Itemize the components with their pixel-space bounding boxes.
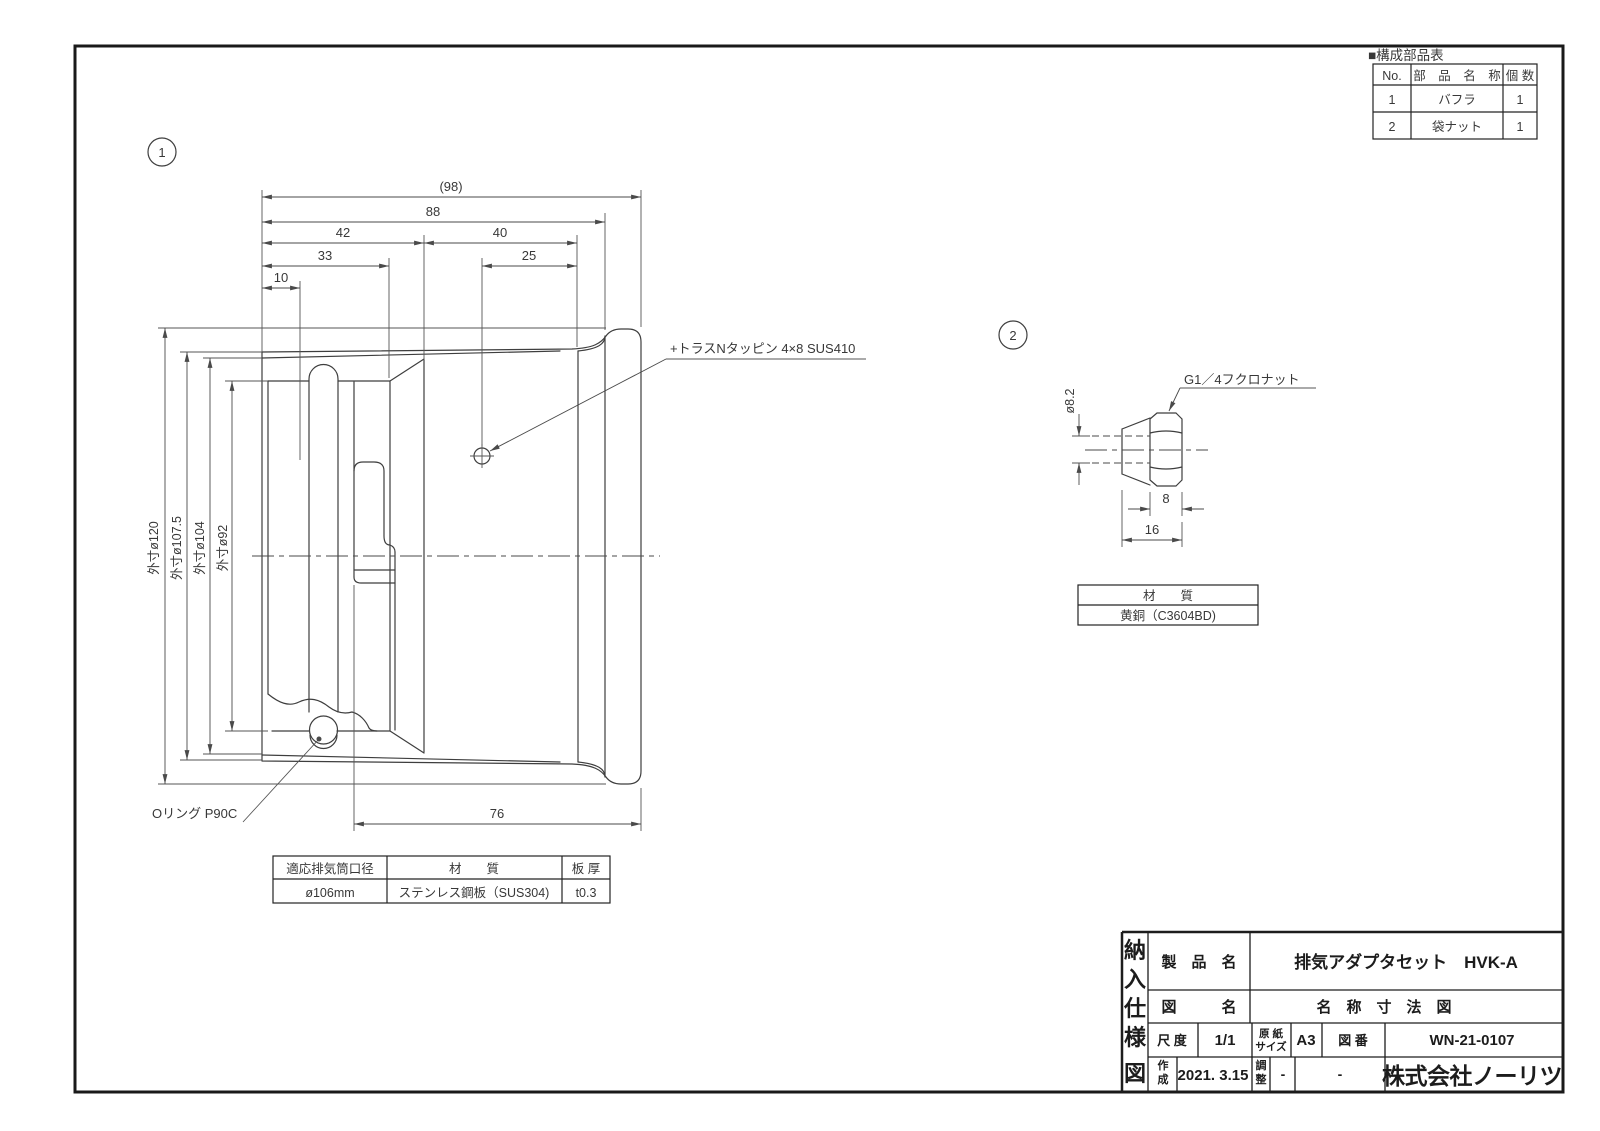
parts-row-name: バフラ xyxy=(1438,93,1476,107)
view1-balloon: 1 xyxy=(148,138,176,166)
dim-40: 40 xyxy=(493,225,507,240)
spec-header-bore: 適応排気筒口径 xyxy=(286,861,374,876)
dim-88: 88 xyxy=(426,204,440,219)
parts-row-no: 2 xyxy=(1389,120,1396,134)
spec-value-material: ステンレス鋼板（SUS304) xyxy=(399,886,550,900)
view2-balloon: 2 xyxy=(999,321,1027,349)
oring-section xyxy=(310,716,338,749)
page-frame xyxy=(75,46,1563,1092)
spec-value-bore: ø106mm xyxy=(305,886,354,900)
side-label-char: 入 xyxy=(1124,967,1146,992)
view2-material-table: 材 質 黄銅（C3604BD) xyxy=(1078,585,1258,625)
created-label-char: 作 xyxy=(1158,1058,1169,1072)
dim-98: (98) xyxy=(439,179,462,194)
drawing-name-value: 名 称 寸 法 図 xyxy=(1316,998,1451,1016)
screw-mark xyxy=(470,444,494,468)
side-label-char: 納 xyxy=(1124,938,1146,963)
parts-col-no: No. xyxy=(1382,69,1401,83)
side-label-char: 様 xyxy=(1124,1025,1147,1050)
drawing-sheet: ■構成部品表 No. 部 品 名 称 個 数 1 バフラ 1 2 袋ナット 1 … xyxy=(0,0,1600,1131)
dim-10: 10 xyxy=(274,270,288,285)
paper-size-value: A3 xyxy=(1296,1032,1315,1049)
parts-row-qty: 1 xyxy=(1517,93,1524,107)
nut-callout-text: G1／4フクロナット xyxy=(1184,372,1300,387)
view1-geometry xyxy=(252,329,660,784)
parts-row-no: 1 xyxy=(1389,93,1396,107)
scale-value: 1/1 xyxy=(1215,1032,1236,1049)
parts-row-qty: 1 xyxy=(1517,120,1524,134)
drawing-name-label: 図 名 xyxy=(1161,998,1236,1016)
dim-8: 8 xyxy=(1162,491,1169,506)
dim-76: 76 xyxy=(490,806,504,821)
spec-value-thickness: t0.3 xyxy=(576,886,597,900)
company-logo: 株式会社ノーリツ xyxy=(1382,1063,1562,1089)
oring-callout-text: Oリング P90C xyxy=(152,806,237,821)
adjusted-value: - xyxy=(1281,1066,1286,1082)
product-label: 製 品 名 xyxy=(1160,953,1236,971)
product-value: 排気アダプタセット HVK-A xyxy=(1294,952,1518,972)
spec-header-material: 材 質 xyxy=(449,861,499,876)
oring-callout: Oリング P90C xyxy=(152,737,322,823)
view1-extension-lines xyxy=(158,190,641,831)
dim-dia8-2: ø8.2 xyxy=(1063,388,1077,413)
parts-col-qty: 個 数 xyxy=(1506,68,1535,83)
material-header: 材 質 xyxy=(1143,588,1193,603)
hidden-bore-lines xyxy=(1092,436,1150,463)
material-value: 黄銅（C3604BD) xyxy=(1120,609,1216,623)
screw-callout-text: +トラスNタッピン 4×8 SUS410 xyxy=(670,341,855,356)
drawing-canvas: ■構成部品表 No. 部 品 名 称 個 数 1 バフラ 1 2 袋ナット 1 … xyxy=(0,0,1600,1131)
drawing-number-value: WN-21-0107 xyxy=(1429,1032,1514,1049)
spec-header-thickness: 板 厚 xyxy=(572,862,600,876)
paper-size-label: 原 紙 xyxy=(1259,1027,1283,1040)
dim-16: 16 xyxy=(1145,522,1159,537)
screw-callout: +トラスNタッピン 4×8 SUS410 xyxy=(490,341,866,451)
balloon-number: 1 xyxy=(158,145,165,160)
dim-dia120: 外寸ø120 xyxy=(147,521,161,575)
created-date-value: 2021. 3.15 xyxy=(1178,1067,1249,1084)
nut-callout: G1／4フクロナット xyxy=(1169,372,1316,411)
side-label-char: 図 xyxy=(1124,1061,1146,1086)
dim-dia104: 外寸ø104 xyxy=(193,521,207,575)
drawing-number-label: 図 番 xyxy=(1338,1033,1369,1048)
dim-25: 25 xyxy=(522,248,536,263)
view1-dimensions: (98) 88 42 40 33 25 10 76 外寸ø120 外寸ø107.… xyxy=(147,179,641,824)
balloon-number: 2 xyxy=(1009,328,1016,343)
parts-table: ■構成部品表 No. 部 品 名 称 個 数 1 バフラ 1 2 袋ナット 1 xyxy=(1368,48,1537,139)
adjusted-label-char: 調 xyxy=(1256,1058,1267,1072)
dim-dia107-5: 外寸ø107.5 xyxy=(170,516,184,580)
created-label-char: 成 xyxy=(1158,1072,1169,1086)
paper-size-label: サイズ xyxy=(1255,1040,1287,1053)
side-label-char: 仕 xyxy=(1123,996,1146,1021)
scale-label: 尺 度 xyxy=(1157,1033,1188,1048)
parts-row-name: 袋ナット xyxy=(1432,120,1482,134)
view2-dimensions: ø8.2 8 16 xyxy=(1063,388,1204,547)
title-block: 納 入 仕 様 図 製 品 名 排気アダプタセット HVK-A 図 名 名 称 … xyxy=(1122,932,1563,1092)
parts-col-name: 部 品 名 称 xyxy=(1413,68,1501,83)
parts-table-title: ■構成部品表 xyxy=(1368,48,1444,63)
dim-dia92: 外寸ø92 xyxy=(216,525,230,572)
view2-geometry xyxy=(1085,413,1208,486)
dim-33: 33 xyxy=(318,248,332,263)
view1-spec-table: 適応排気筒口径 材 質 板 厚 ø106mm ステンレス鋼板（SUS304) t… xyxy=(273,856,610,903)
dim-42: 42 xyxy=(336,225,350,240)
adjusted-label-char: 整 xyxy=(1255,1072,1267,1086)
extra-dash-value: - xyxy=(1338,1066,1343,1082)
